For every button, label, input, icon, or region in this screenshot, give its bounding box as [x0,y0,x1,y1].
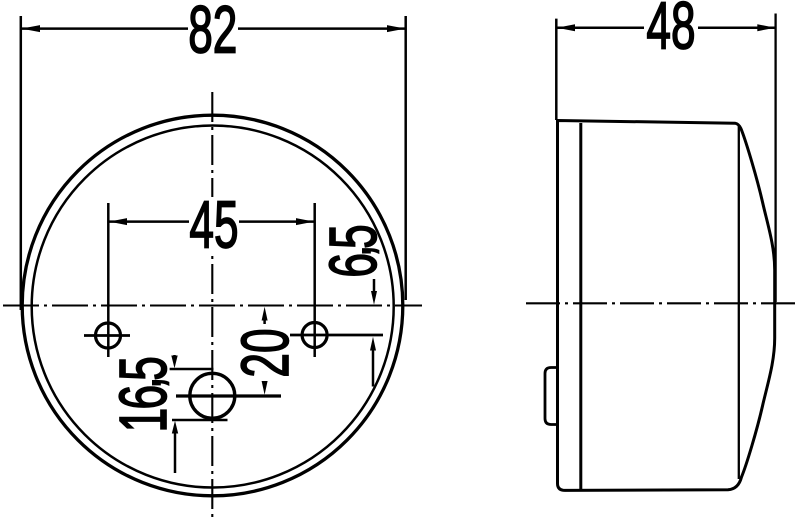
svg-text:6,5: 6,5 [311,224,391,277]
svg-text:20: 20 [229,328,303,377]
svg-text:48: 48 [646,0,695,64]
svg-text:16,5: 16,5 [101,356,181,432]
svg-text:45: 45 [189,188,238,262]
svg-text:82: 82 [188,0,237,68]
